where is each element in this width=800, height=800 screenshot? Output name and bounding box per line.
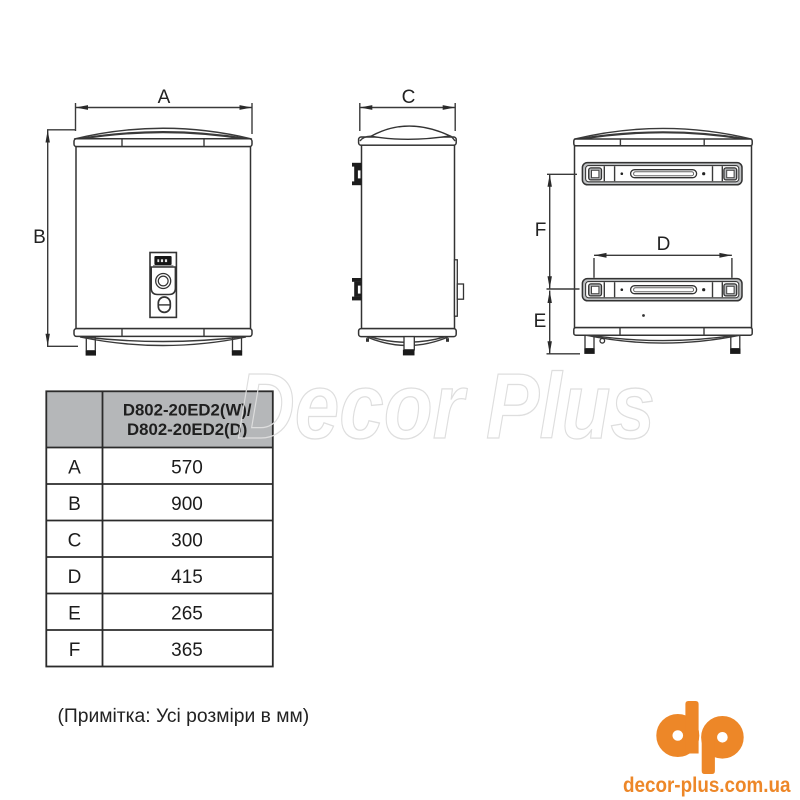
svg-text:415: 415 [171,567,203,588]
svg-text:C: C [68,531,82,552]
svg-text:900: 900 [171,494,203,515]
svg-text:E: E [68,604,81,625]
svg-text:D: D [68,567,82,588]
svg-text:B: B [68,494,81,515]
svg-text:D: D [657,234,671,255]
svg-text:D802-20ED2(D): D802-20ED2(D) [127,420,247,439]
svg-text:265: 265 [171,604,203,625]
svg-text:decor-plus.com.ua: decor-plus.com.ua [623,774,791,797]
svg-text:F: F [69,640,81,661]
svg-text:Decor Plus: Decor Plus [237,354,655,458]
svg-text:570: 570 [171,458,203,479]
svg-text:F: F [535,220,547,241]
svg-text:A: A [158,87,171,108]
svg-text:E: E [534,311,547,332]
svg-text:A: A [68,458,81,479]
svg-text:300: 300 [171,531,203,552]
svg-text:D802-20ED2(W)/: D802-20ED2(W)/ [123,400,252,419]
svg-text:365: 365 [171,640,203,661]
svg-text:C: C [402,87,416,108]
svg-text:B: B [33,227,46,248]
svg-text:(Примітка: Усі розміри в мм): (Примітка: Усі розміри в мм) [58,706,310,727]
